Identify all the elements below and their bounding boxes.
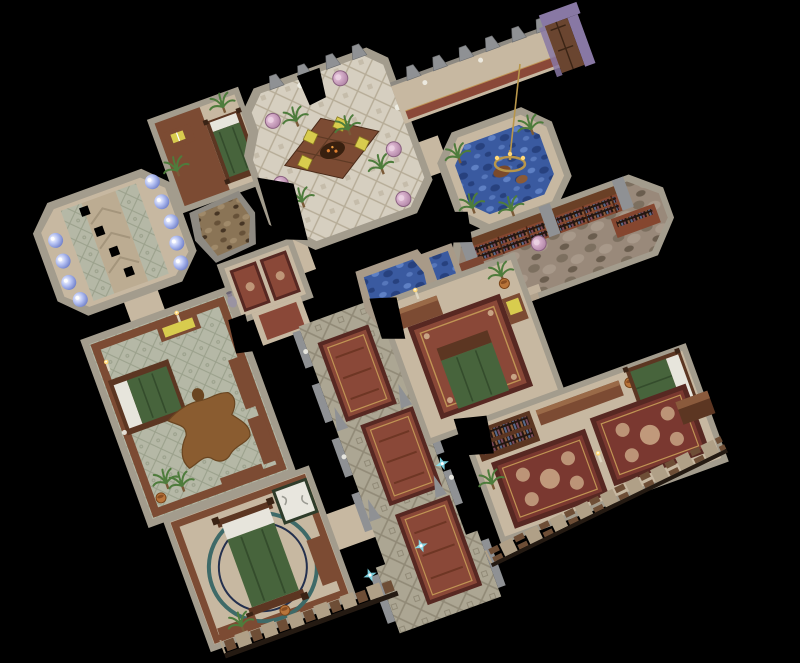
map-viewport[interactable]: [0, 0, 800, 663]
map-stage: [0, 0, 800, 663]
